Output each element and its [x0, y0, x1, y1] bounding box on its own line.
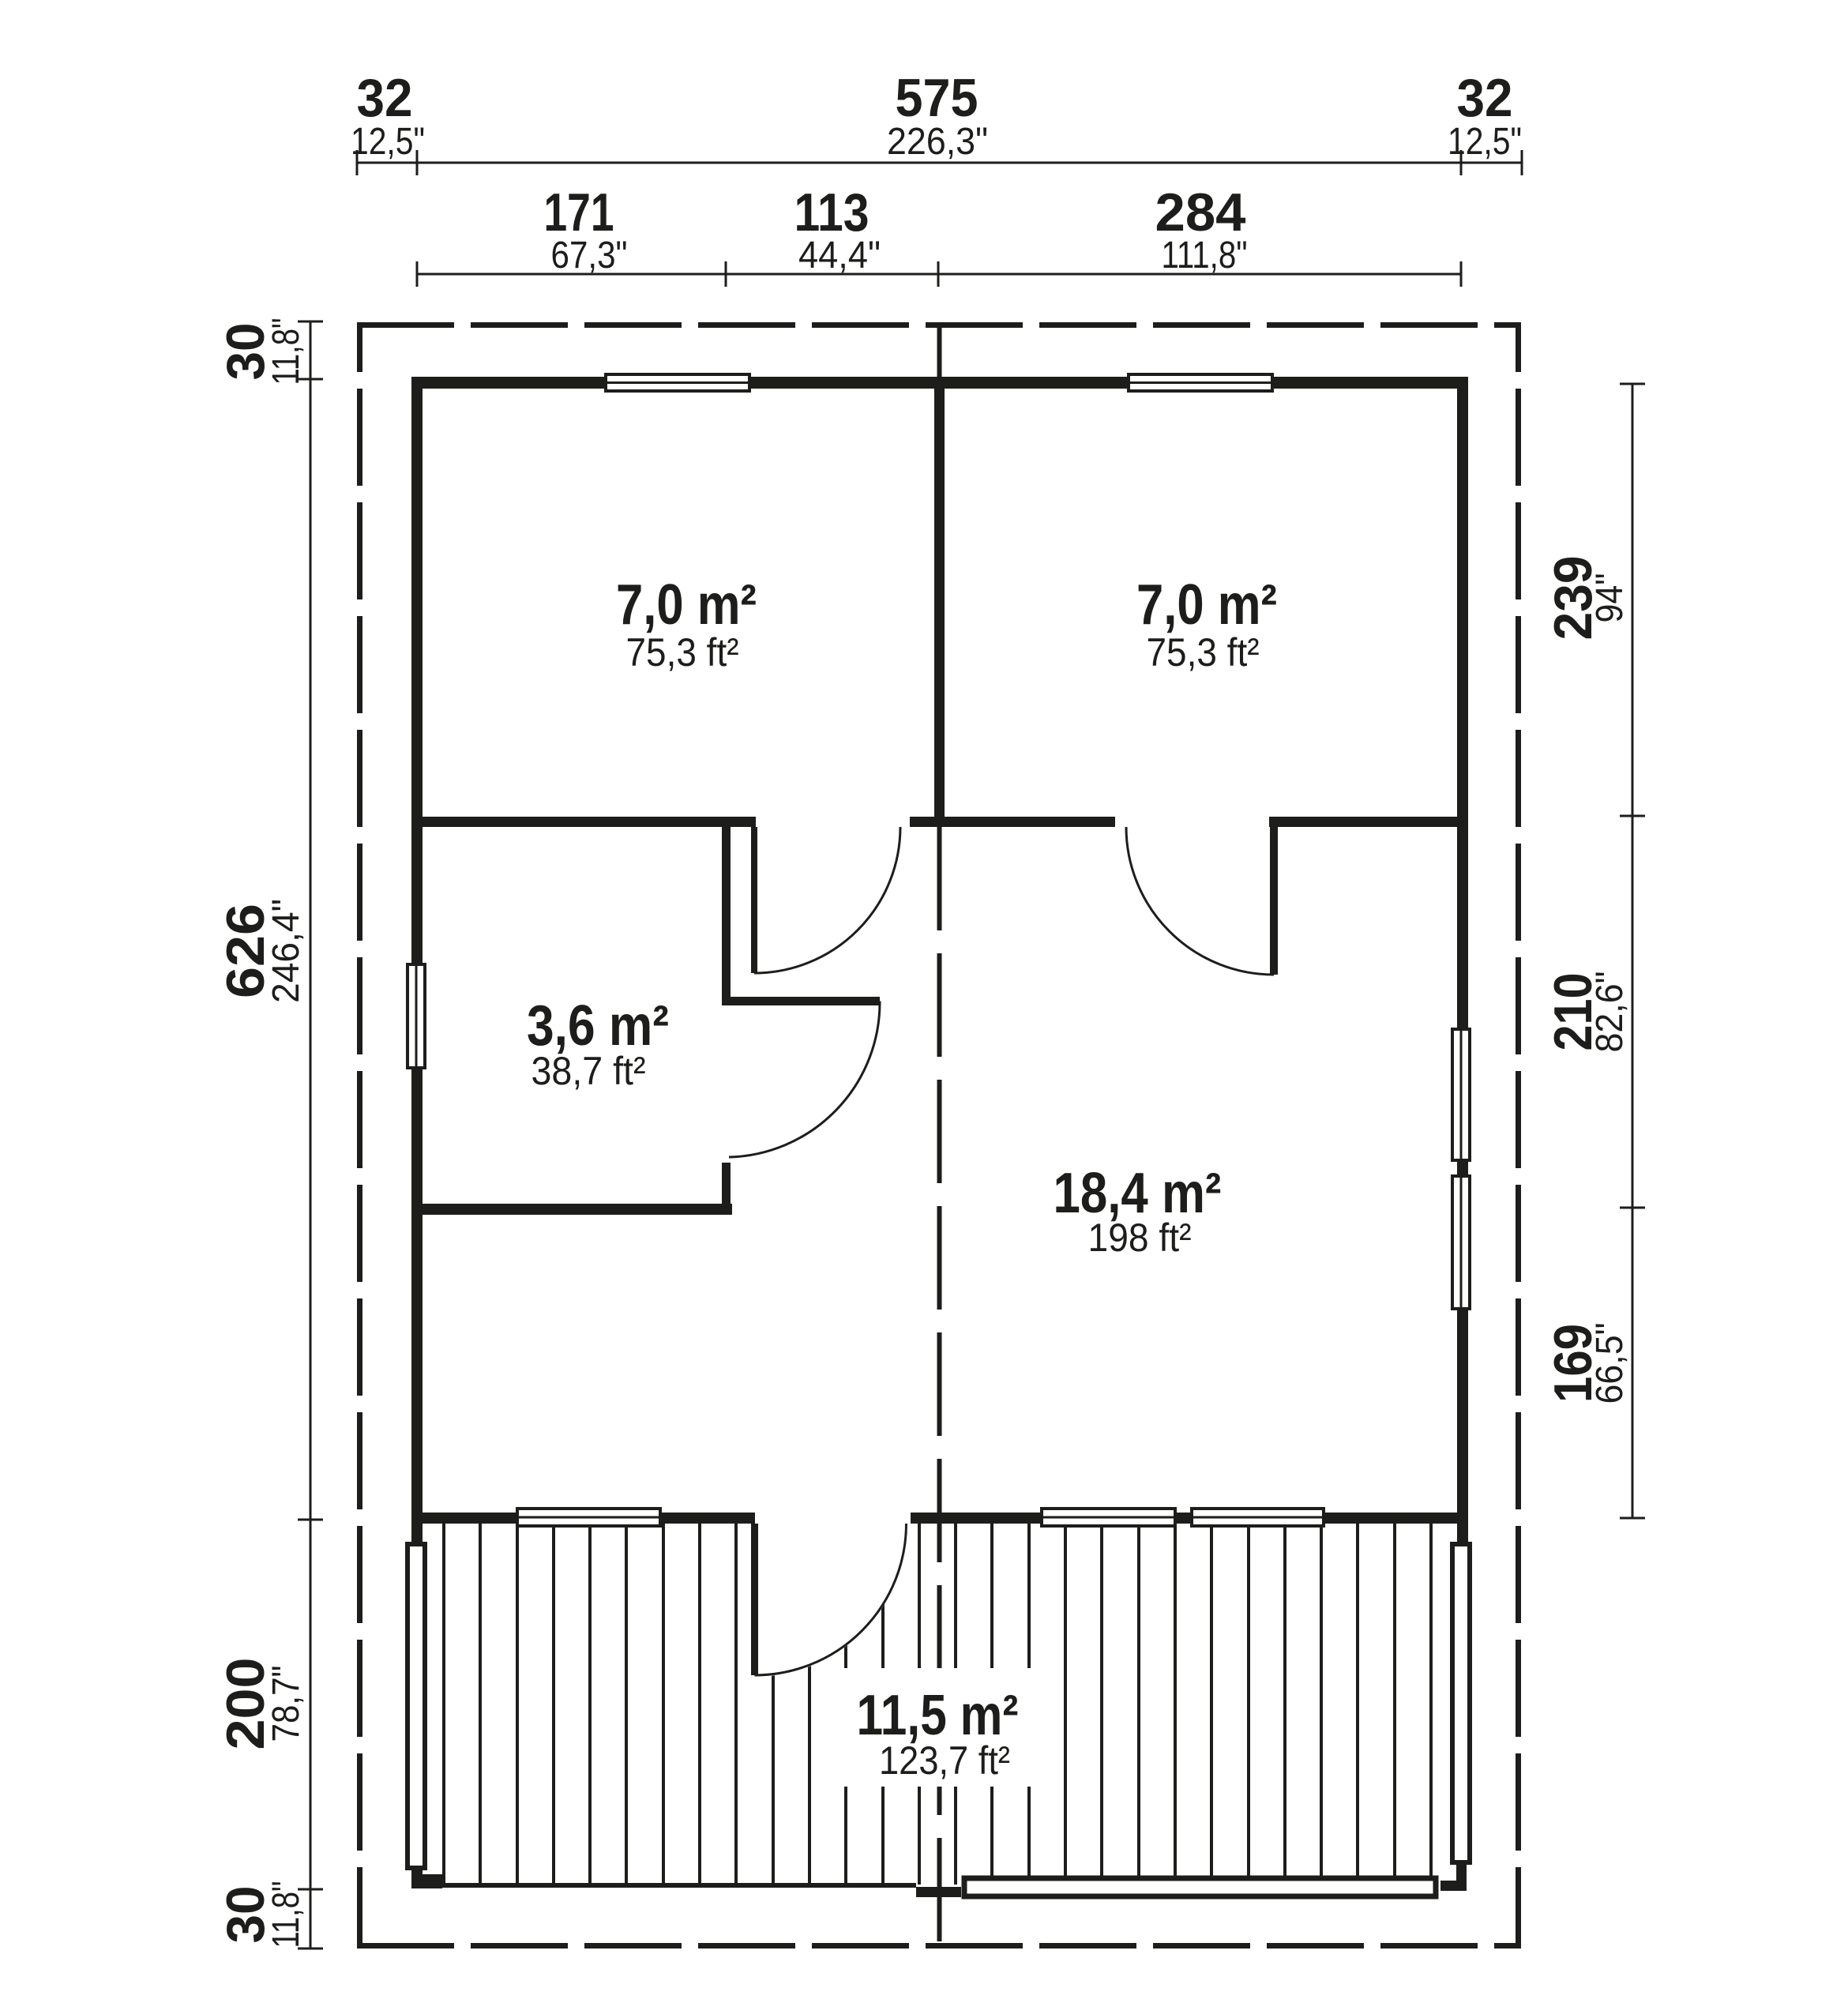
svg-text:94": 94": [1589, 573, 1631, 623]
svg-text:66,5": 66,5": [1589, 1323, 1631, 1404]
svg-text:82,6": 82,6": [1589, 971, 1631, 1053]
svg-text:113: 113: [794, 182, 870, 242]
svg-text:3,6 m²: 3,6 m²: [527, 994, 669, 1058]
svg-text:246,4": 246,4": [265, 899, 307, 1003]
svg-text:38,7 ft²: 38,7 ft²: [531, 1049, 646, 1093]
svg-text:284: 284: [1155, 182, 1246, 242]
svg-text:75,3 ft²: 75,3 ft²: [1147, 630, 1260, 675]
svg-text:7,0 m²: 7,0 m²: [1136, 573, 1277, 637]
svg-text:123,7 ft²: 123,7 ft²: [879, 1738, 1010, 1783]
svg-text:226,3": 226,3": [887, 121, 988, 163]
svg-text:171: 171: [544, 182, 614, 242]
svg-text:111,8": 111,8": [1162, 235, 1248, 276]
svg-text:12,5": 12,5": [351, 121, 425, 163]
svg-text:11,8": 11,8": [265, 1881, 307, 1949]
svg-text:44,4": 44,4": [798, 235, 881, 276]
svg-text:32: 32: [357, 68, 413, 128]
svg-text:75,3 ft²: 75,3 ft²: [626, 630, 739, 675]
svg-text:575: 575: [896, 68, 978, 128]
svg-text:198 ft²: 198 ft²: [1088, 1216, 1192, 1260]
svg-text:67,3": 67,3": [551, 235, 628, 276]
svg-text:7,0 m²: 7,0 m²: [616, 573, 757, 637]
svg-text:11,8": 11,8": [265, 318, 307, 385]
svg-text:12,5": 12,5": [1448, 121, 1522, 163]
svg-text:78,7": 78,7": [265, 1666, 307, 1742]
svg-text:32: 32: [1457, 68, 1513, 128]
svg-text:11,5 m²: 11,5 m²: [857, 1684, 1019, 1747]
